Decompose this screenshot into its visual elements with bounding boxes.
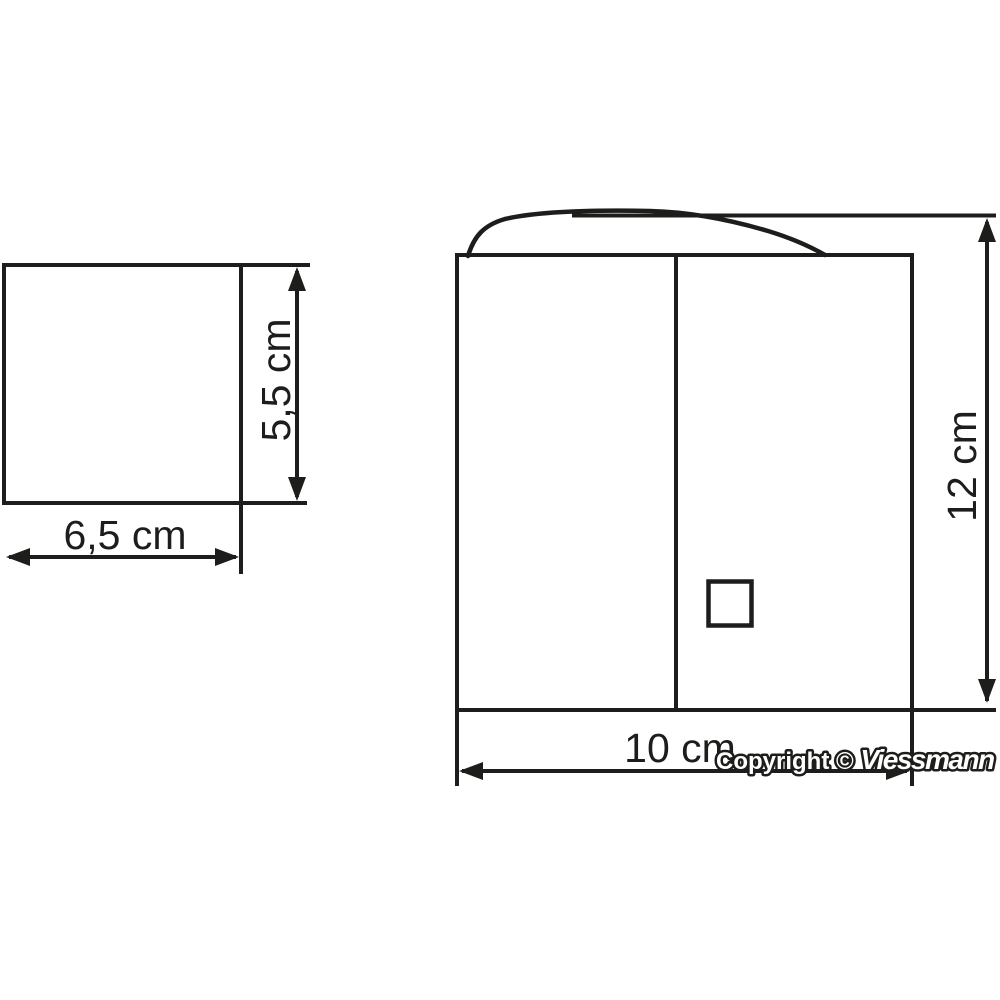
- left-height-label: 5,5 cm: [253, 318, 299, 441]
- inner-square-detail: [709, 582, 752, 626]
- right-part-outline: [457, 255, 912, 710]
- dimension-drawing-canvas: 5,5 cm 6,5 cm: [0, 0, 1000, 1000]
- dimension-diagram: 5,5 cm 6,5 cm: [0, 0, 1000, 1000]
- left-height-dimension: 5,5 cm: [253, 267, 306, 501]
- viessmann-brand-logo: Viessmann: [860, 744, 994, 775]
- left-width-dimension: 6,5 cm: [6, 512, 239, 566]
- arrowhead-right-icon: [215, 548, 239, 566]
- right-height-dimension: 12 cm: [939, 218, 996, 703]
- copyright-watermark: Copyright © Viessmann: [716, 744, 994, 775]
- arrowhead-up-icon: [978, 218, 996, 242]
- left-width-label: 6,5 cm: [63, 512, 186, 558]
- arrowhead-up-icon: [288, 267, 306, 291]
- arrowhead-down-icon: [288, 477, 306, 501]
- arrowhead-down-icon: [978, 679, 996, 703]
- right-shape: 12 cm 10 cm: [457, 211, 996, 786]
- right-height-label: 12 cm: [939, 410, 985, 522]
- arrowhead-left-icon: [459, 762, 483, 780]
- copyright-text: Copyright ©: [716, 748, 860, 775]
- arrowhead-left-icon: [6, 548, 30, 566]
- left-shape: 5,5 cm 6,5 cm: [4, 265, 310, 574]
- left-part-outline: [4, 265, 241, 503]
